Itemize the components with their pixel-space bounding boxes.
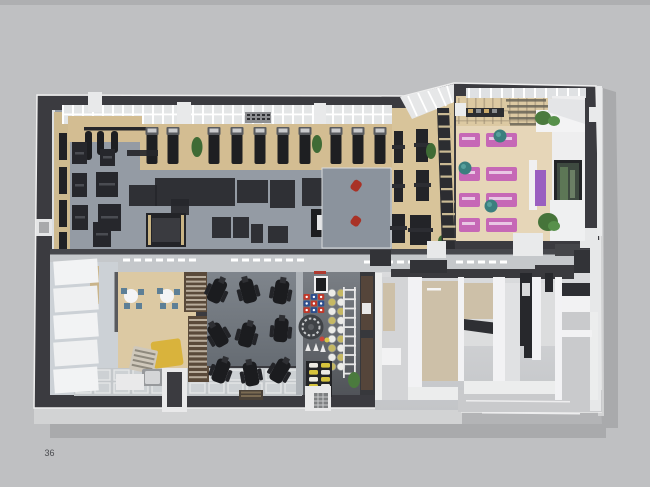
svg-text:36: 36 bbox=[45, 448, 55, 458]
